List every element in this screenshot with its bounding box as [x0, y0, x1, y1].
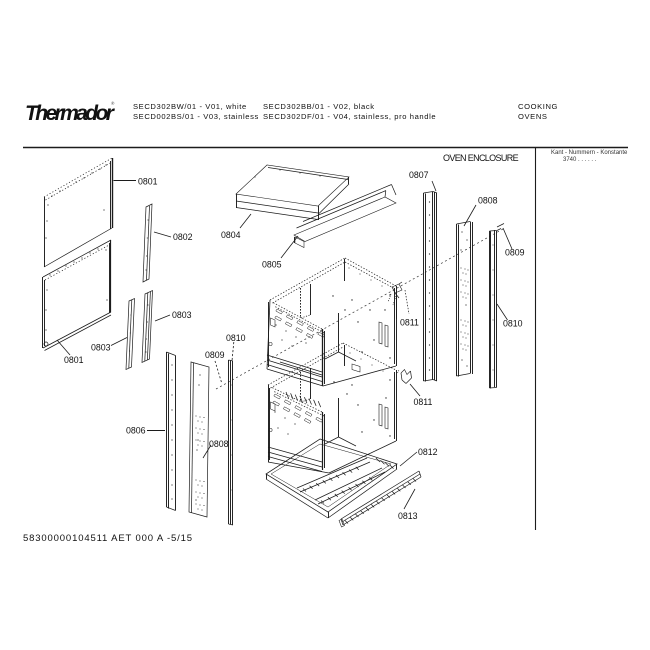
svg-text:0813: 0813: [398, 511, 418, 521]
svg-text:0808: 0808: [478, 196, 498, 206]
svg-text:0806: 0806: [126, 426, 146, 436]
svg-text:0809: 0809: [505, 248, 525, 258]
svg-text:OVEN ENCLOSURE: OVEN ENCLOSURE: [443, 153, 519, 163]
svg-text:Thermador: Thermador: [25, 102, 116, 125]
svg-text:Kant - Nummern - Konstante: Kant - Nummern - Konstante: [551, 150, 628, 156]
svg-text:3740 . . . . . .: 3740 . . . . . .: [563, 157, 597, 163]
svg-text:0807: 0807: [409, 170, 429, 180]
svg-text:0810: 0810: [503, 319, 523, 329]
svg-text:0811: 0811: [400, 318, 419, 328]
svg-text:0812: 0812: [418, 447, 438, 457]
svg-text:SECD302BW/01 - V01, white: SECD302BW/01 - V01, white: [133, 102, 247, 111]
svg-text:OVENS: OVENS: [518, 112, 548, 121]
svg-text:0809: 0809: [205, 350, 225, 360]
svg-text:0810: 0810: [226, 333, 246, 343]
svg-text:58300000104511 AET 000 A -: 58300000104511 AET 000 A -5/15: [23, 533, 193, 544]
svg-text:0808: 0808: [209, 439, 229, 449]
svg-text:0804: 0804: [221, 230, 241, 240]
svg-text:0811: 0811: [414, 397, 433, 407]
svg-text:0803: 0803: [172, 310, 192, 320]
svg-text:0805: 0805: [262, 260, 282, 270]
svg-text:SECD002BS/01 - V03, stainless: SECD002BS/01 - V03, stainless: [133, 112, 259, 121]
svg-text:SECD302BB/01 - V02, black: SECD302BB/01 - V02, black: [263, 102, 375, 111]
svg-text:COOKING: COOKING: [518, 102, 558, 111]
svg-text:SECD302DF/01 - V04, stainless,: SECD302DF/01 - V04, stainless, pro handl…: [263, 112, 436, 121]
svg-text:0801: 0801: [64, 355, 84, 365]
svg-text:0803: 0803: [91, 343, 111, 353]
svg-text:0801: 0801: [138, 177, 158, 187]
svg-text:0802: 0802: [173, 232, 193, 242]
